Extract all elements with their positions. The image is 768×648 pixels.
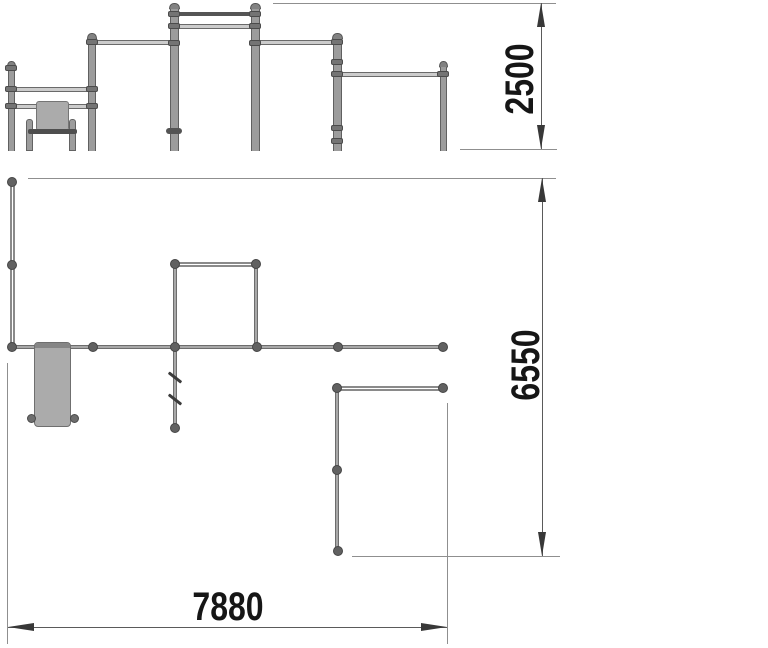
plan-post-node-10 xyxy=(332,383,342,393)
plan-post-node-14 xyxy=(170,423,180,433)
plan-post-node-6 xyxy=(170,342,180,352)
plan-line-3 xyxy=(173,264,177,347)
plan-post-node-7 xyxy=(252,342,262,352)
plan-line-1 xyxy=(12,345,443,349)
plan-bench-foot-0 xyxy=(27,414,36,423)
plan-bench-foot-1 xyxy=(70,414,79,423)
plan-view xyxy=(0,0,768,648)
plan-post-node-3 xyxy=(88,342,98,352)
technical-drawing-canvas: 2500 6550 7880 xyxy=(0,0,768,648)
plan-post-node-5 xyxy=(251,259,261,269)
plan-bench xyxy=(34,342,71,427)
plan-line-2 xyxy=(175,262,256,267)
plan-post-node-12 xyxy=(332,465,342,475)
plan-bench-backrest-edge xyxy=(35,343,70,348)
plan-post-node-8 xyxy=(333,342,343,352)
plan-line-6 xyxy=(337,386,443,391)
plan-line-4 xyxy=(254,264,258,347)
plan-post-node-0 xyxy=(7,177,17,187)
plan-line-5 xyxy=(173,347,177,428)
plan-post-node-1 xyxy=(7,260,17,270)
plan-post-node-4 xyxy=(170,259,180,269)
plan-post-node-2 xyxy=(7,342,17,352)
plan-post-node-9 xyxy=(438,342,448,352)
plan-post-node-11 xyxy=(438,383,448,393)
plan-post-node-13 xyxy=(333,546,343,556)
